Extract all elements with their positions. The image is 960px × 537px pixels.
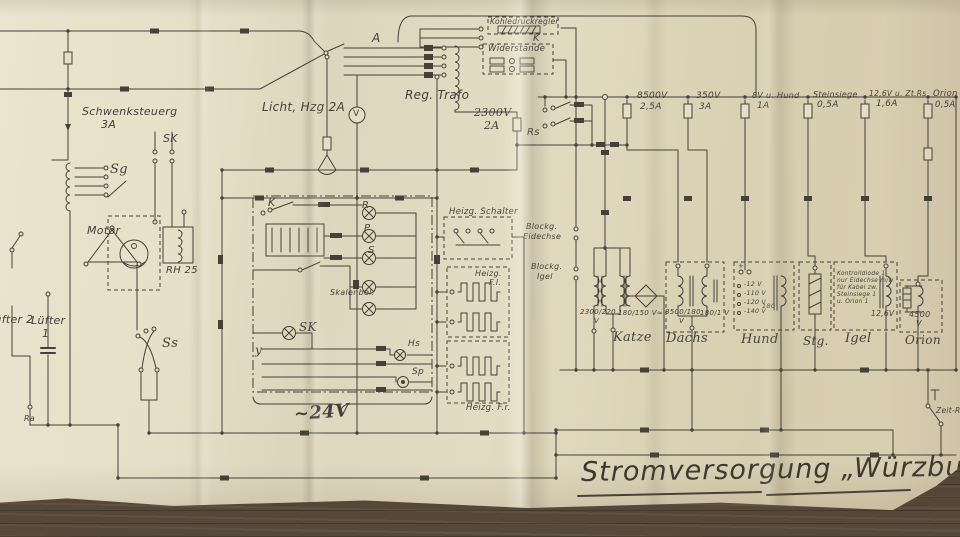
fuse-2300-rating: 2A (484, 120, 500, 132)
motor-symbol (120, 240, 148, 268)
hund-plus: + (738, 263, 744, 270)
licht-heizung-label: Licht, Hzg 2A (262, 101, 345, 114)
schematic-title: Stromversorgung „Würzburg“ (581, 453, 960, 487)
luefter1-number: 1 (42, 328, 49, 340)
terminal-circles (10, 27, 943, 426)
fuse-350-rating: 3A (699, 103, 711, 112)
ra-terminal-label: Ra (24, 415, 35, 423)
dachs-winding1: 8500/180 (665, 309, 701, 316)
heizg-fl-label-2: F.l. (489, 279, 501, 287)
igel-note-1: Kontrolldiode 1 (837, 271, 885, 277)
fuse-hund-rating: 1A (757, 102, 769, 111)
fuse-steinsiege-name: Steinsiege (813, 91, 858, 99)
orion-coil (918, 286, 923, 306)
fuse-orion-name: Orion (933, 90, 958, 99)
fuse-350-name: 350V (696, 92, 721, 101)
schematic-paper: Schwenksteuerg 3A SK Sg Motor RH 25 Lüft… (0, 0, 960, 537)
sk-lamp-label: SK (299, 321, 317, 334)
blockg-igel-label-2: Igel (537, 273, 553, 281)
dachs-winding1-unit: V (679, 318, 684, 325)
fuse-8500-name: 8500V (637, 92, 668, 101)
dachs-box (666, 262, 724, 332)
reg-trafo-label: Reg. Trafo (405, 89, 469, 102)
top-bus-bracket (398, 16, 756, 97)
motor-label: Motor (87, 225, 120, 237)
orion-name: Orion (905, 334, 941, 347)
ss-switch-label: Ss (162, 337, 178, 351)
selector-a-label: A (372, 32, 381, 45)
igel-note-5: u. Orion 1 (837, 299, 869, 305)
dachs-name: Dachs (666, 332, 708, 346)
dachs-winding2: 180/1 V (700, 310, 729, 317)
igel-note-2: nur Eidechse m/w (837, 278, 894, 284)
orion-voltage-unit: V (916, 320, 922, 328)
hund-coil (781, 276, 786, 370)
hund-name: Hund (741, 333, 779, 347)
blockg-eidechse-label-1: Blockg. (526, 223, 557, 231)
supply-voltage-label: ~24V (293, 402, 349, 425)
fuse-ztrs-rating: 1,6A (876, 100, 898, 109)
rs-relay-label: Rs (527, 128, 540, 139)
lamp-r-label: R (362, 201, 369, 212)
fuse-steinsiege-rating: 0,5A (817, 101, 839, 110)
control-k-label: K (268, 197, 276, 209)
dachs-coil (678, 276, 683, 306)
luefter1-label: Lüfter (31, 315, 65, 327)
blockg-eidechse-label-2: Eidechse (523, 233, 561, 241)
katze-winding1-unit: V (594, 318, 599, 325)
skalenbeleuchtung-label: Skalenbel. (330, 289, 375, 297)
lamp-p-label: P (364, 224, 370, 235)
licht-outlet (318, 59, 336, 175)
katze-winding2: 180/150 V≈ (618, 310, 663, 317)
igel-note-3: für Kabel zw. (837, 285, 878, 291)
igel-note-4: Steinsiege 1 (837, 292, 876, 298)
katze-name: Katze (613, 331, 652, 345)
fuse-2300-voltage: 2300V (474, 107, 511, 119)
title-underline (578, 490, 910, 496)
fuse-ztrs-name: 12,6V u. Zt.Rs (869, 90, 927, 98)
hund-tap-2: -110 V (744, 291, 766, 298)
hs-lamp-label: Hs (408, 340, 420, 349)
heizg-schalter-box (444, 217, 512, 259)
ss-switch-arcs (140, 331, 156, 368)
blockg-igel-label-1: Blockg. (531, 263, 562, 271)
katze-winding1: 2300/220 (580, 309, 616, 316)
lamp-s-label: S (368, 246, 375, 257)
y-terminal-label: y (255, 344, 262, 357)
kohledruckregler-label: Kohledruckregler (490, 18, 559, 26)
hund-tap-1: -12 V (744, 282, 762, 289)
rh25-box (163, 227, 193, 263)
luefter2-label: Lüfter 2 (0, 314, 33, 326)
rh25-label: RH 25 (166, 266, 198, 277)
heizg-fr-label: Heizg. F.r. (466, 404, 510, 413)
photo-scene: Schwenksteuerg 3A SK Sg Motor RH 25 Lüft… (0, 0, 960, 537)
fuse-orion-rating: 0,5A (935, 101, 956, 110)
rectifier (630, 285, 664, 370)
igel-name: Igel (845, 332, 872, 346)
sg-selector-label: Sg (110, 163, 128, 177)
hund-tap-value: 180 (762, 303, 775, 310)
igel-coil (886, 276, 891, 370)
schwenksteuerung-label: Schwenksteuerg (82, 106, 177, 118)
sg-coil (66, 163, 70, 211)
k-contact-label: K (533, 34, 540, 45)
fuse-hund-name: 8V u. Hund (752, 92, 800, 100)
schwenksteuerung-rating: 3A (101, 119, 116, 131)
sp-lamp-label: Sp (412, 368, 424, 377)
voltmeter-label: V (353, 110, 359, 119)
wire-network (0, 16, 956, 496)
heizg-schalter-label: Heizg. Schalter (449, 208, 518, 217)
heizg-fr-box (447, 341, 509, 403)
widerstaende-label: Widerstände (488, 45, 545, 54)
zeit-rs-label: Zeit-Rs (936, 407, 960, 415)
igel-voltage: 12,6V (871, 310, 894, 318)
stg-name: Stg. (803, 335, 829, 348)
sk-contacts-label: SK (163, 133, 178, 145)
fuse-8500-rating: 2,5A (640, 103, 662, 112)
